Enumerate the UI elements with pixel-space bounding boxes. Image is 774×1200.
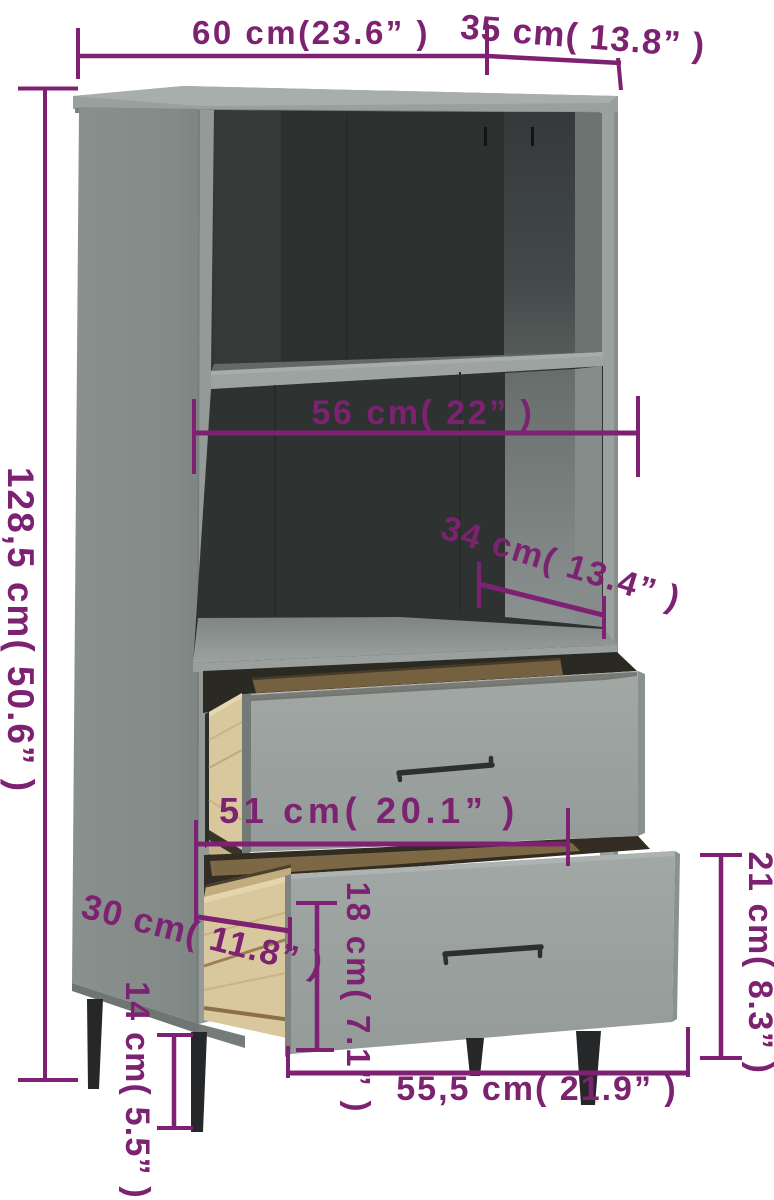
svg-text:18 cm( 7.1” ): 18 cm( 7.1” )	[340, 882, 377, 1115]
svg-text:14 cm( 5.5” ): 14 cm( 5.5” )	[118, 981, 156, 1199]
svg-text:21 cm( 8.3” ): 21 cm( 8.3” )	[741, 851, 774, 1074]
svg-text:56 cm( 22” ): 56 cm( 22” )	[312, 394, 535, 432]
svg-text:60 cm(23.6” ): 60 cm(23.6” )	[192, 14, 430, 51]
svg-text:51 cm( 20.1” ): 51 cm( 20.1” )	[219, 790, 519, 831]
svg-text:55,5 cm( 21.9” ): 55,5 cm( 21.9” )	[396, 1070, 677, 1108]
svg-text:128,5 cm( 50.6” ): 128,5 cm( 50.6” )	[0, 467, 41, 793]
